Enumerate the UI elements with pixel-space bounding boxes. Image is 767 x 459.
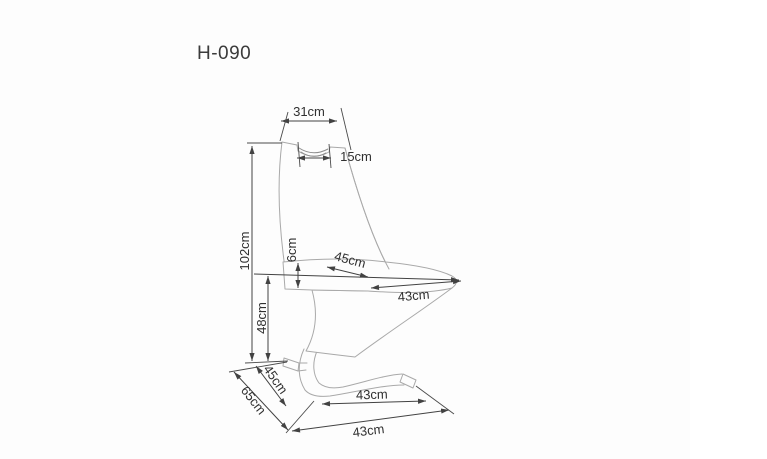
base-runner-inner-edge	[314, 351, 402, 388]
dim-label-seat-width: 43cm	[397, 287, 430, 305]
dim-label-base-runner-length: 43cm	[356, 386, 388, 402]
ext-line	[341, 108, 351, 150]
dim-label-backrest-top-width: 31cm	[293, 104, 325, 119]
dim-label-total-height: 102cm	[237, 231, 252, 270]
base-front-foot-cap	[400, 374, 416, 388]
handle-cutout-arc	[299, 148, 328, 153]
chair-drawing	[279, 142, 456, 396]
dim-label-seat-height: 48cm	[254, 302, 269, 334]
dim-label-base-width: 43cm	[352, 421, 385, 440]
dim-label-handle-cutout: 15cm	[340, 149, 372, 164]
base-rear-foot-cap	[283, 358, 299, 371]
chair-dimension-diagram: 31cm 15cm 102cm 48cm 6cm 45cm 43cm 45cm	[0, 0, 767, 459]
ext-line	[280, 112, 288, 141]
dim-label-total-depth: 65cm	[238, 383, 269, 417]
dim-label-seat-thickness: 6cm	[284, 238, 299, 263]
chair-z-support	[306, 288, 452, 357]
